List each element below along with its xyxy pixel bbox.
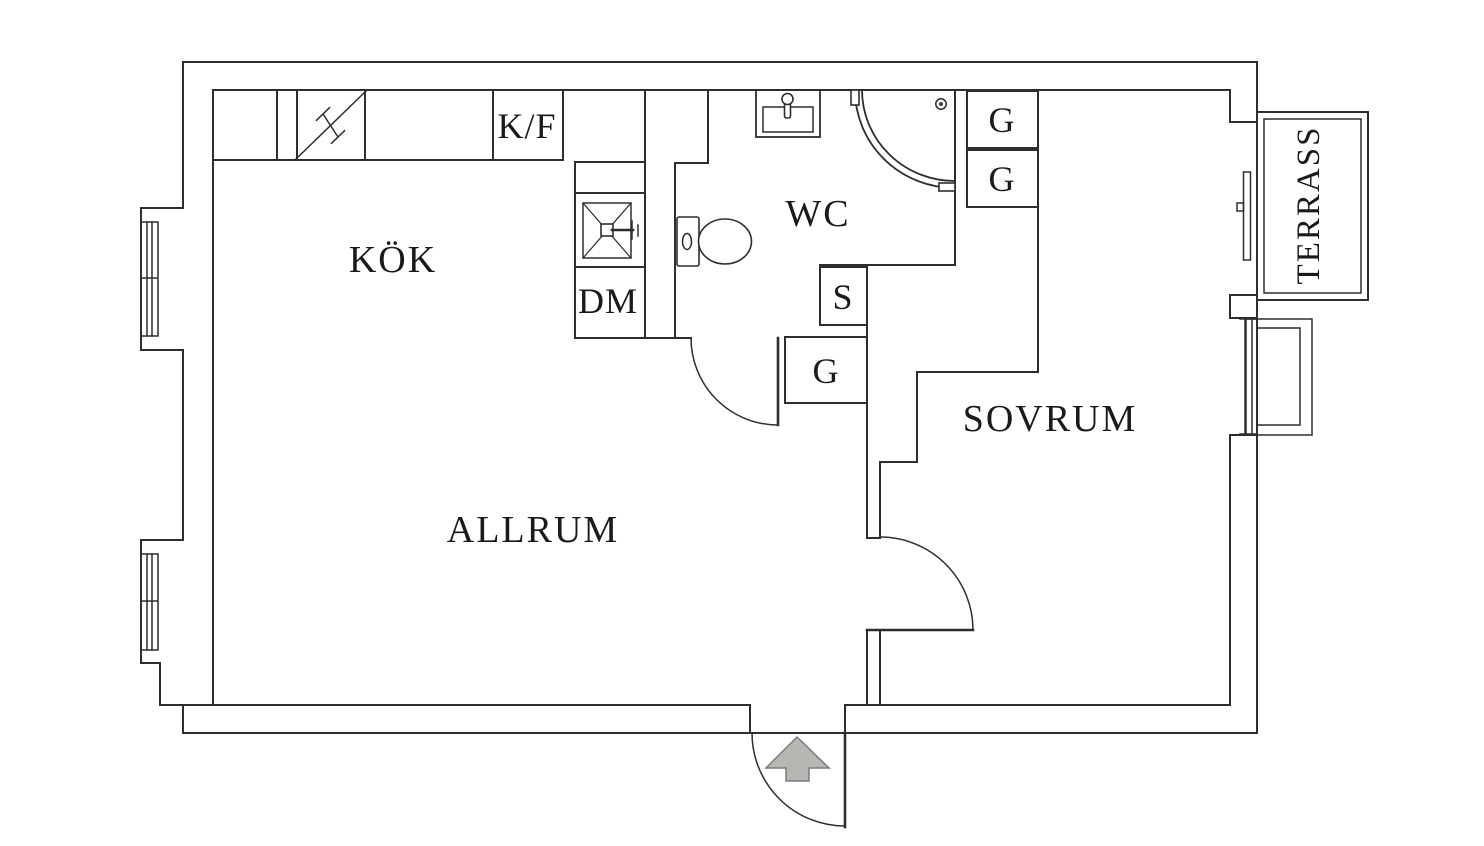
livingroom-window xyxy=(141,554,158,650)
terrace-door-handle xyxy=(1237,203,1244,211)
toilet-symbol xyxy=(677,217,752,266)
bedroom-window-railing xyxy=(1245,319,1312,435)
right-wall-stub-caps xyxy=(1230,122,1257,435)
livingroom-window-glazing xyxy=(142,554,157,650)
fridge-freezer-label: K/F xyxy=(497,106,556,146)
stove-symbol xyxy=(295,91,366,160)
wc-door-swing xyxy=(691,338,778,425)
shower-symbol xyxy=(851,90,955,191)
closet-g1-label: G xyxy=(989,100,1016,140)
bedroom-door xyxy=(867,537,973,630)
wc-sink-symbol xyxy=(756,90,820,137)
bedroom-door-swing xyxy=(880,537,973,630)
wc-label: WC xyxy=(785,193,850,235)
floor-plan-drawing: KÖK WC ALLRUM SOVRUM TERRASS K/F DM S G … xyxy=(0,0,1484,846)
bedroom-window xyxy=(1240,319,1312,435)
closet-s-label: S xyxy=(832,277,853,317)
kitchen-sink-symbol xyxy=(583,203,638,258)
kitchen-label: KÖK xyxy=(349,239,437,281)
living-room-label: ALLRUM xyxy=(447,509,619,551)
entrance-arrow-icon xyxy=(766,737,829,781)
bedroom-window-glazing xyxy=(1240,319,1257,434)
kitchen-window-glazing xyxy=(142,222,157,336)
kitchen-window xyxy=(141,222,158,336)
terrace-label: TERRASS xyxy=(1291,126,1327,285)
hall-walls xyxy=(867,265,880,705)
closet-g2-label: G xyxy=(989,159,1016,199)
floor-plan: KÖK WC ALLRUM SOVRUM TERRASS K/F DM S G … xyxy=(0,0,1484,846)
terrace-door xyxy=(1237,172,1251,260)
closet-g-hall-label: G xyxy=(813,351,840,391)
wc-door xyxy=(691,338,778,425)
dishwasher-label: DM xyxy=(578,281,638,321)
bedroom-label: SOVRUM xyxy=(963,398,1138,440)
